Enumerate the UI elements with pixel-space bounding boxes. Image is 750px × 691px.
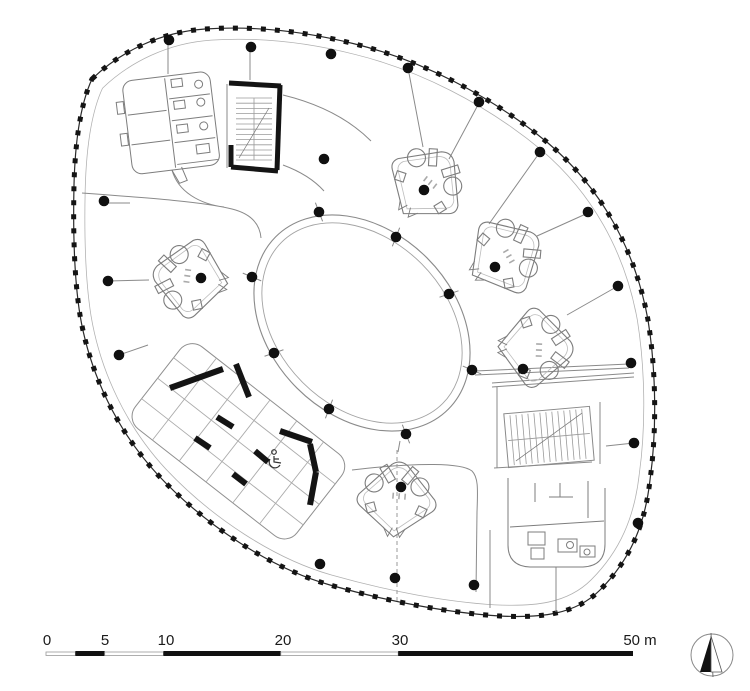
pod-column-dot [419,185,430,196]
perimeter-column-dot [474,97,485,108]
corridor-column-dot [319,154,330,165]
ring-column-dot [444,289,455,300]
scale-bar-white-segment [105,652,164,656]
facade-outline [74,28,655,616]
perimeter-column-dot [390,573,401,584]
wc-fixture [174,100,186,109]
perimeter-column-dot [469,580,480,591]
wc-fixture [196,143,210,154]
wc-bowl-icon [194,80,203,89]
perimeter-column-dot [164,35,175,46]
wc-bowl-icon [584,549,590,555]
perimeter-column-dot [403,63,414,74]
scale-bar-segments [46,651,633,656]
pod-column-dot [196,273,207,284]
core-oval [211,172,514,475]
room-partitions [510,481,604,527]
black-wall-segment [255,451,268,462]
scale-bar-white-segment [46,652,75,656]
ring-column-dot [391,232,402,243]
black-wall-segment [229,83,281,86]
perimeter-column-dot [315,559,326,570]
wc-fixture [171,78,183,87]
scale-bar-white-segment [281,652,398,656]
corridor-line [82,170,261,238]
black-wall-segment [310,444,316,472]
northwest-service-block [114,71,222,190]
black-wall-segment [195,438,210,448]
southeast-wc-block [508,478,605,567]
room-outline [508,478,605,567]
corridor-line [283,95,371,191]
wc-fixture [176,124,188,133]
pod-column-dot [490,262,501,273]
wc-bowl-icon [196,98,205,107]
core-oval-inner-wall [222,183,502,463]
scale-label: 0 [43,632,51,649]
pod-column-dot [518,364,529,375]
black-wall-segment [236,364,249,397]
floor-plan-canvas: 0 5 10 20 30 50 m [0,0,750,691]
scale-bar: 0 5 10 20 30 50 m [43,632,657,656]
wc-fixture [531,548,544,559]
scale-label: 10 [158,632,175,649]
scale-label: 20 [275,632,292,649]
ring-column-dot [401,429,412,440]
perimeter-column-dot [246,42,257,53]
southeast-stair-core [504,406,594,467]
black-wall-segment [310,472,316,505]
black-wall-segment [277,85,280,170]
scale-label: 5 [101,632,109,649]
ring-column-dot [269,348,280,359]
wc-pod-top-right [372,130,481,238]
perimeter-column-dot [326,49,337,60]
north-arrow-needle [700,633,722,677]
shear-wall-layer [170,83,316,505]
wc-fixture [558,539,577,552]
stair-run-arrow [512,413,585,461]
wc-pod-left [148,234,233,323]
perimeter-column-dot [613,281,624,292]
black-wall-segment [233,474,246,484]
demising-line [475,364,629,375]
facade-mullion-teeth [74,28,655,616]
scale-label: 50 m [623,632,656,649]
perimeter-column-dot [103,276,114,287]
perimeter-column-dot [114,350,125,361]
floor-plan-page: 0 5 10 20 30 50 m [0,0,750,691]
ring-column-dot [324,404,335,415]
balcony-tick [120,133,128,146]
perimeter-column-dot [583,207,594,218]
wc-pod-right-upper [453,203,558,309]
ring-column-dot [467,365,478,376]
scale-bar-black-segment [75,651,104,656]
scale-bar-black-segment [163,651,280,656]
pod-column-dot [396,482,407,493]
north-stair-core [227,84,272,168]
perimeter-column-dot [633,518,644,529]
stair-treads [236,98,272,160]
wc-bowl-icon [199,121,208,130]
perimeter-column-dot [626,358,637,369]
black-wall-segment [231,167,278,171]
balcony-tick [116,102,124,115]
ring-column-dot [314,207,325,218]
perimeter-column-dot [629,438,640,449]
scale-bar-black-segment [398,651,633,656]
perimeter-column-dot [99,196,110,207]
black-wall-segment [217,417,233,427]
wc-pods-layer [148,130,575,540]
north-arrow-icon [691,633,733,677]
room-partitions [124,73,218,173]
perimeter-column-dot [535,147,546,158]
scale-label: 30 [392,632,409,649]
core-oval-outer-wall [211,172,514,475]
wheelchair-icon [269,450,281,468]
facade-wall-line [74,28,655,616]
ring-column-dot [247,272,258,283]
wc-pod-right-lower [497,307,575,389]
wc-bowl-icon [567,542,574,549]
black-wall-segment [170,369,223,388]
wc-fixture [528,532,545,545]
